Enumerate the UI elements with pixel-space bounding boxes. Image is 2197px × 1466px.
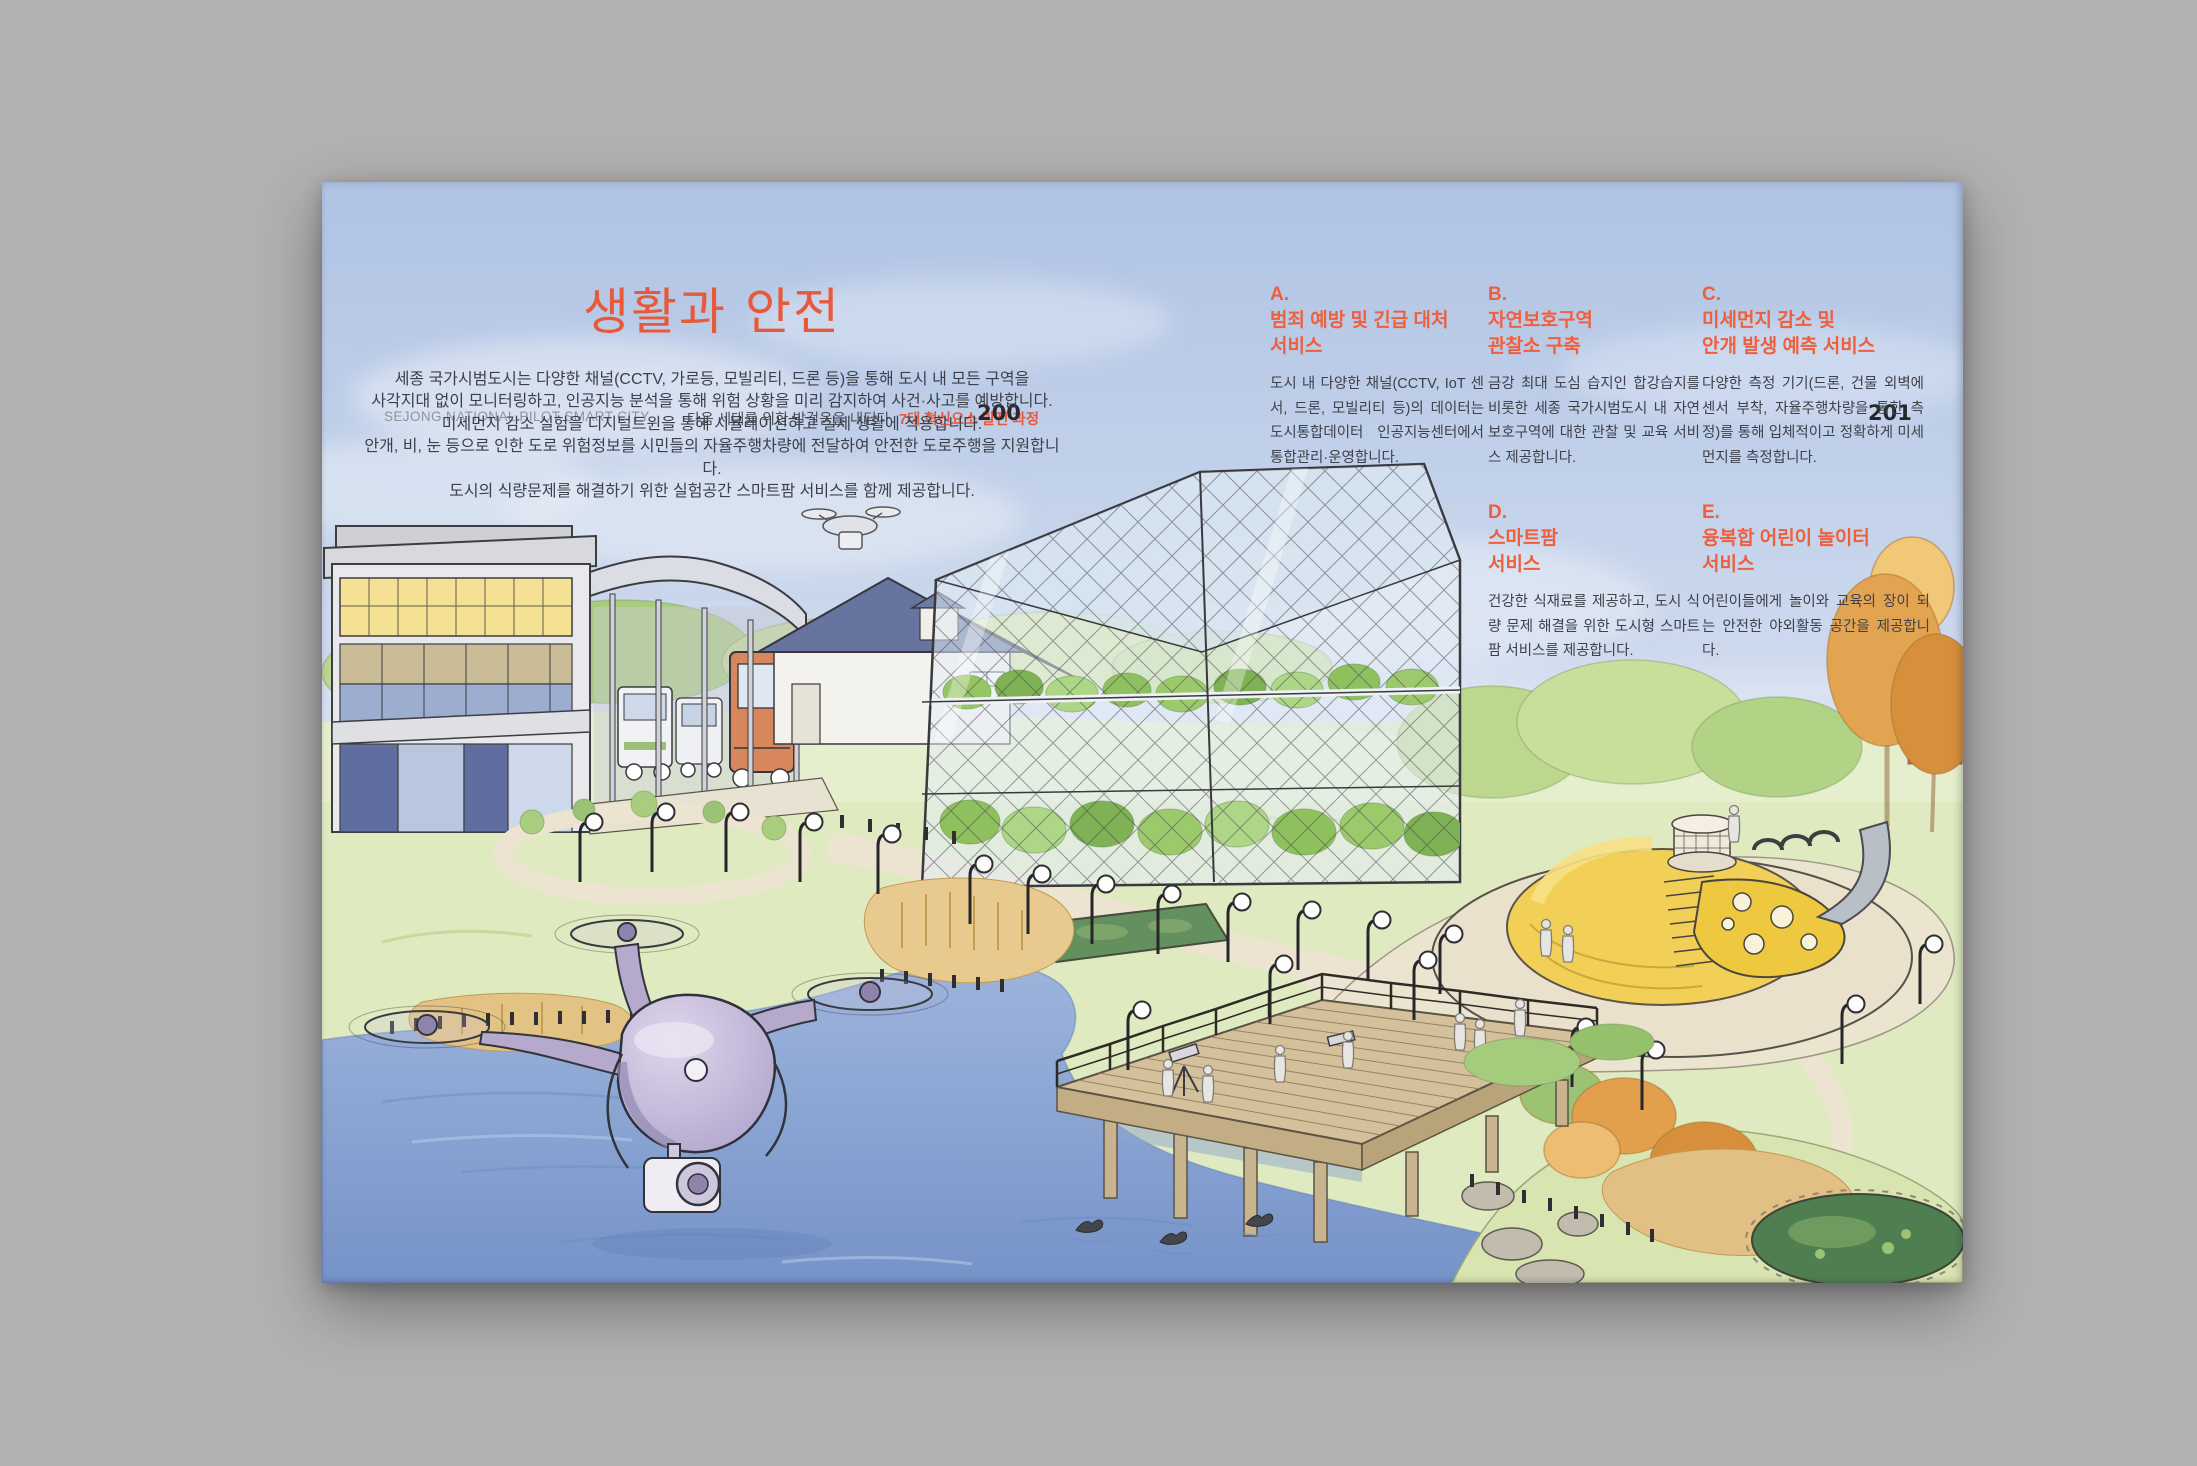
intro-line: 사각지대 없이 모니터링하고, 인공지능 분석을 통해 위험 상황을 미리 감지… [362,391,1062,413]
service-id: E. [1702,500,1930,526]
service-card-b: B. 자연보호구역 관찰소 구축 금강 최대 도심 습지인 합강습지를 비롯한 … [1488,282,1700,470]
brochure-spread: SEJONG NATIONAL PILOT SMART CITY 다음 세대를 … [322,182,1963,1283]
service-title-line2: 안개 발생 예측 서비스 [1702,334,1924,360]
deck-visitor [1202,1066,1213,1103]
office-building [324,526,596,832]
service-title-line1: 융복합 어린이 놀이터 [1702,526,1930,552]
service-card-e: E. 융복합 어린이 놀이터 서비스 어린이들에게 놀이와 교육의 장이 되는 … [1702,500,1930,664]
page-title: 생활과 안전 [362,272,1062,344]
service-id: D. [1488,500,1700,526]
service-description: 다양한 측정 기기(드론, 건물 외벽에 센서 부착, 자율주행차량을 통한 측… [1702,372,1924,470]
hill-hut [1668,815,1736,872]
service-id: B. [1488,282,1700,308]
service-description: 도시 내 다양한 채널(CCTV, IoT 센서, 드론, 모빌리티 등)의 데… [1270,372,1484,470]
service-description: 건강한 식재료를 제공하고, 도시 식량 문제 해결을 위한 도시형 스마트팜 … [1488,590,1700,664]
service-title-line2: 서비스 [1270,334,1484,360]
desk-background: SEJONG NATIONAL PILOT SMART CITY 다음 세대를 … [0,0,2197,1466]
service-id: C. [1702,282,1924,308]
intro-paragraph: 세종 국가시범도시는 다양한 채널(CCTV, 가로등, 모빌리티, 드론 등)… [362,369,1062,503]
intro-line: 세종 국가시범도시는 다양한 채널(CCTV, 가로등, 모빌리티, 드론 등)… [362,369,1062,391]
park-visitor [1540,920,1551,957]
service-title-line1: 자연보호구역 [1488,308,1700,334]
deck-visitor [1342,1032,1353,1069]
park-visitor [1562,926,1573,963]
service-title-line1: 미세먼지 감소 및 [1702,308,1924,334]
park-visitor [1728,806,1739,843]
intro-line: 미세먼지 감소 실험을 디지털트윈을 통해 시뮬레이션하고 실제 생활에 적용합… [362,414,1062,436]
service-title-line2: 관찰소 구축 [1488,334,1700,360]
deck-visitor [1162,1060,1173,1097]
service-card-c: C. 미세먼지 감소 및 안개 발생 예측 서비스 다양한 측정 기기(드론, … [1702,282,1924,470]
service-description: 금강 최대 도심 습지인 합강습지를 비롯한 세종 국가시범도시 내 자연보호구… [1488,372,1700,470]
service-title-line1: 범죄 예방 및 긴급 대처 [1270,308,1484,334]
deck-visitor [1454,1014,1465,1051]
service-title-line1: 스마트팜 [1488,526,1700,552]
service-title-line2: 서비스 [1488,552,1700,578]
service-description: 어린이들에게 놀이와 교육의 장이 되는 안전한 야외활동 공간을 제공합니다. [1702,590,1930,664]
service-card-d: D. 스마트팜 서비스 건강한 식재료를 제공하고, 도시 식량 문제 해결을 … [1488,500,1700,664]
intro-line: 도시의 식량문제를 해결하기 위한 실험공간 스마트팜 서비스를 함께 제공합니… [362,481,1062,503]
service-id: A. [1270,282,1484,308]
deck-visitor [1274,1046,1285,1083]
service-card-a: A. 범죄 예방 및 긴급 대처 서비스 도시 내 다양한 채널(CCTV, I… [1270,282,1484,470]
service-title-line2: 서비스 [1702,552,1930,578]
deck-visitor [1514,1000,1525,1037]
intro-line: 안개, 비, 눈 등으로 인한 도로 위험정보를 시민들의 자율주행차량에 전달… [362,436,1062,481]
